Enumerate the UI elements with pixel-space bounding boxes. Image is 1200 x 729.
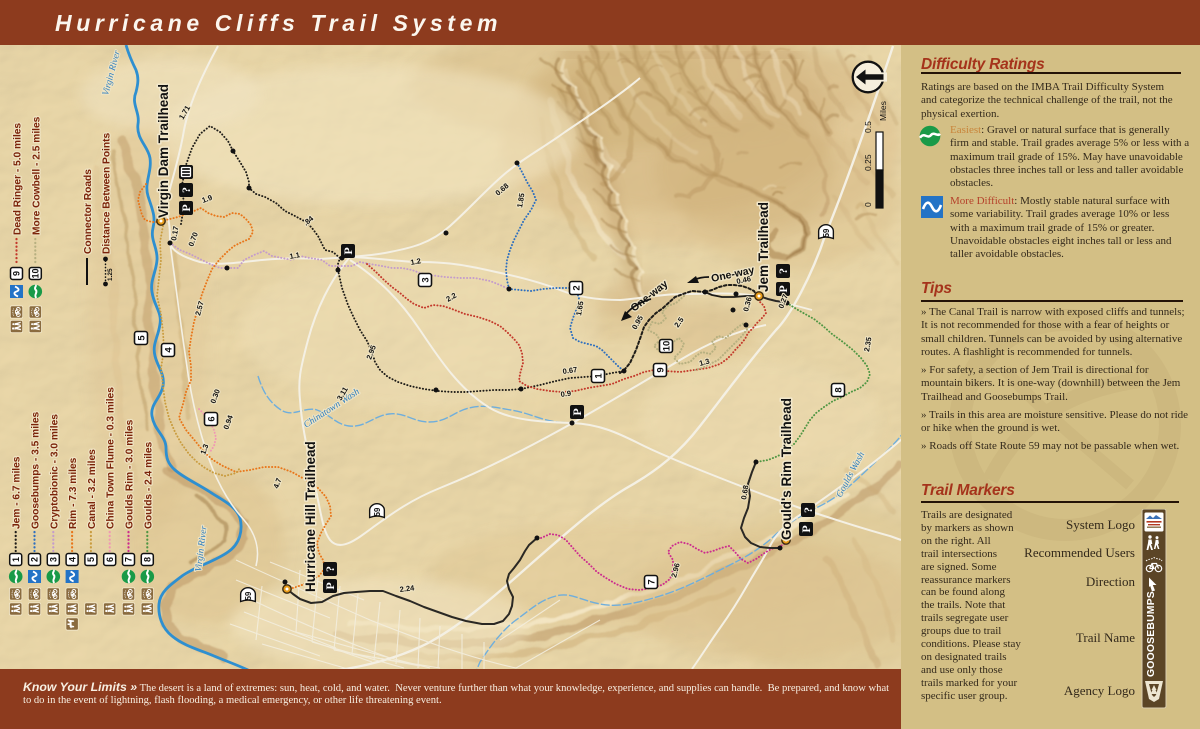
svg-text:Hurricane Hill Trailhead: Hurricane Hill Trailhead [303,441,318,592]
svg-text:Goosebumps - 3.5 miles: Goosebumps - 3.5 miles [31,411,42,529]
svg-text:10: 10 [31,268,41,278]
svg-text:2: 2 [571,285,582,290]
svg-text:2.24: 2.24 [399,583,415,594]
svg-text:5: 5 [86,557,96,562]
svg-text:P: P [179,204,193,211]
svg-text:?: ? [776,268,790,274]
svg-text:Miles: Miles [878,101,888,121]
svg-text:4: 4 [163,347,174,353]
svg-text:0.9: 0.9 [560,389,572,399]
svg-text:More Cowbell - 2.5 miles: More Cowbell - 2.5 miles [31,116,42,235]
svg-text:P: P [323,582,337,589]
svg-text:Goulds - 2.4 miles: Goulds - 2.4 miles [143,441,154,529]
svg-text:Cryptobionic - 3.0 miles: Cryptobionic - 3.0 miles [49,414,60,529]
svg-text:1: 1 [593,373,604,379]
svg-text:Jem - 6.7 miles: Jem - 6.7 miles [12,456,23,529]
svg-text:7: 7 [124,557,134,562]
svg-text:59: 59 [244,591,253,600]
svg-text:7: 7 [646,579,657,584]
svg-text:P: P [799,525,813,532]
svg-text:1.2: 1.2 [410,256,422,267]
svg-text:6: 6 [105,557,115,562]
svg-text:8: 8 [143,557,153,562]
svg-text:Connector Roads: Connector Roads [83,169,94,254]
svg-text:2: 2 [30,557,40,562]
svg-text:Goulds Rim - 3.0 miles: Goulds Rim - 3.0 miles [125,419,136,529]
svg-text:?: ? [323,566,337,572]
svg-text:P: P [341,247,355,254]
svg-text:1.25: 1.25 [107,268,114,281]
svg-text:?: ? [179,187,193,193]
svg-text:10: 10 [661,341,672,352]
svg-text:59: 59 [822,228,831,237]
svg-text:0.25: 0.25 [863,154,873,171]
svg-text:0.5: 0.5 [863,121,873,133]
svg-text:0: 0 [863,202,873,207]
svg-text:5: 5 [136,335,147,341]
svg-text:9: 9 [12,271,22,276]
svg-text:1: 1 [11,557,21,562]
svg-text:P: P [570,408,584,415]
svg-text:Gould's Rim Trailhead: Gould's Rim Trailhead [779,398,794,540]
svg-text:9: 9 [655,367,666,372]
svg-text:Distance Between Points: Distance Between Points [102,133,113,254]
svg-text:4: 4 [67,557,77,562]
svg-text:1.1: 1.1 [289,250,301,261]
svg-text:?: ? [801,507,815,513]
svg-text:Jem Trailhead: Jem Trailhead [756,202,771,292]
svg-text:GOOOSEBUMPS: GOOOSEBUMPS [1146,591,1157,677]
svg-text:China Town Flume - 0.3 miles: China Town Flume - 0.3 miles [106,387,117,529]
svg-text:59: 59 [373,507,382,516]
svg-text:Virgin Dam Trailhead: Virgin Dam Trailhead [156,84,171,218]
svg-text:3: 3 [49,557,59,562]
svg-text:P: P [776,285,790,292]
svg-text:6: 6 [206,416,217,421]
svg-text:Dead Ringer - 5.0 miles: Dead Ringer - 5.0 miles [13,123,24,235]
svg-text:8: 8 [833,387,844,392]
svg-text:3: 3 [420,277,431,282]
svg-text:Canal - 3.2 miles: Canal - 3.2 miles [87,449,98,529]
svg-text:Rim - 7.3 miles: Rim - 7.3 miles [68,457,79,529]
